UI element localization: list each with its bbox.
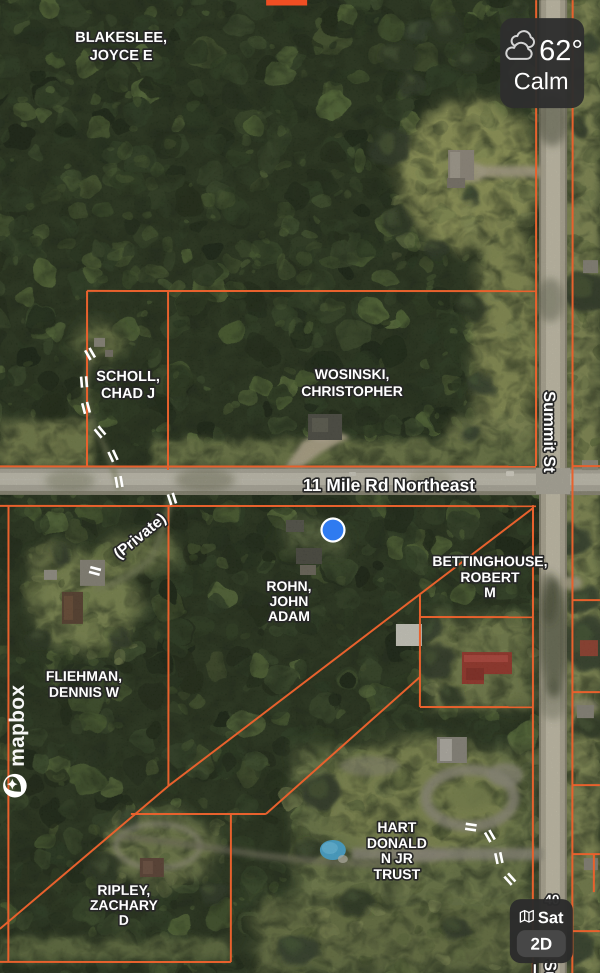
svg-text:BETTINGHOUSE,: BETTINGHOUSE, <box>432 553 547 569</box>
svg-text:SCHOLL,: SCHOLL, <box>96 369 160 385</box>
svg-text:Sat: Sat <box>538 909 564 927</box>
svg-text:2D: 2D <box>530 935 552 954</box>
svg-text:TRUST: TRUST <box>374 866 421 882</box>
svg-text:RIPLEY,: RIPLEY, <box>97 882 150 898</box>
svg-text:CHAD J: CHAD J <box>101 386 155 402</box>
svg-text:M: M <box>484 584 496 600</box>
svg-text:l: l <box>533 962 537 973</box>
svg-text:FLIEHMAN,: FLIEHMAN, <box>46 668 122 684</box>
svg-text:Summit St: Summit St <box>540 391 558 473</box>
svg-text:N JR: N JR <box>381 850 413 866</box>
svg-text:ROBERT: ROBERT <box>460 569 520 585</box>
svg-text:BLAKESLEE,: BLAKESLEE, <box>75 30 167 46</box>
svg-text:ZACHARY: ZACHARY <box>90 897 159 913</box>
svg-text:ADAM: ADAM <box>268 608 310 624</box>
svg-text:JOHN: JOHN <box>270 593 309 609</box>
svg-text:HART: HART <box>377 819 416 835</box>
svg-text:JOYCE E: JOYCE E <box>90 48 153 64</box>
svg-text:DONALD: DONALD <box>367 835 427 851</box>
svg-text:Calm: Calm <box>514 68 569 94</box>
svg-text:62°: 62° <box>539 35 583 67</box>
svg-text:mapbox: mapbox <box>6 685 29 767</box>
svg-text:D: D <box>119 912 129 928</box>
svg-text:CHRISTOPHER: CHRISTOPHER <box>301 383 403 399</box>
svg-text:ROHN,: ROHN, <box>266 578 311 594</box>
svg-text:WOSINSKI,: WOSINSKI, <box>315 366 390 382</box>
svg-text:DENNIS W: DENNIS W <box>49 684 120 700</box>
svg-text:11 Mile Rd Northeast: 11 Mile Rd Northeast <box>303 475 475 495</box>
